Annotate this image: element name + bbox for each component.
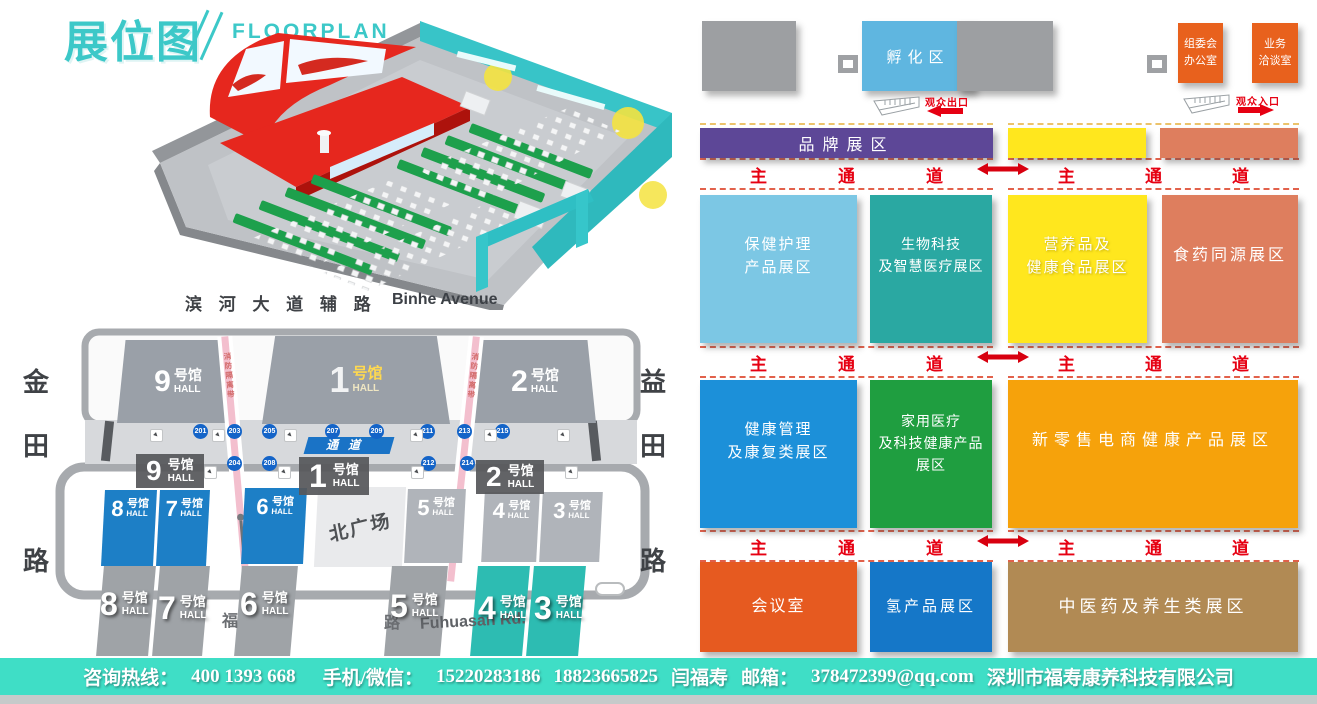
door-icon: ▸ <box>212 429 225 442</box>
divider <box>700 530 993 532</box>
north-plaza-label: 北广场 <box>314 503 406 550</box>
main-aisle-band: 主通道 <box>700 534 993 559</box>
company-name: 深圳市福寿康养科技有限公司 <box>987 663 1234 690</box>
hall-1-number: 1 <box>329 362 349 398</box>
zone-business-room: 业务洽谈室 <box>1252 23 1298 83</box>
divider <box>1008 123 1299 125</box>
overlay-label-2: 2 号馆HALL <box>476 460 544 494</box>
zone-home-medical-tech-health: 家用医疗及科技健康产品展区 <box>870 380 992 528</box>
zone-conference-room: 会议室 <box>700 562 857 652</box>
hall-7: 7 号馆HALL <box>156 490 210 566</box>
road-jintian: 金 田 路 <box>20 362 52 578</box>
hall-8: 8 号馆HALL <box>101 490 157 566</box>
divider <box>1008 530 1299 532</box>
divider <box>1008 188 1299 190</box>
zone-nutrition-health-food: 营养品及健康食品展区 <box>1008 195 1147 343</box>
hall-6: 6 号馆HALL <box>241 488 307 564</box>
zone-tcm-wellness: 中医药及养生类展区 <box>1008 562 1298 652</box>
email-address: 378472399@qq.com <box>811 666 974 688</box>
strip-label-6: 6 号馆HALL <box>240 588 288 620</box>
phone-number-1: 15220283186 <box>436 666 541 688</box>
door-icon: ▸ <box>484 429 497 442</box>
divider <box>700 123 993 125</box>
hall-1: 1 号馆 HALL <box>262 336 450 424</box>
zone-health-management-rehab: 健康管理及康复类展区 <box>700 380 857 528</box>
hall-9-number: 9 <box>154 367 171 397</box>
door-icon: ▸ <box>411 466 424 479</box>
booth-badge: 214 <box>460 456 475 471</box>
booth-badge: 209 <box>369 424 384 439</box>
road-fuhuasan-cn-a: 福 <box>222 607 238 631</box>
strip-label-4: 4 号馆HALL <box>478 592 526 624</box>
door-icon: ▸ <box>565 466 578 479</box>
door-icon: ▸ <box>204 466 217 479</box>
hall-2-number: 2 <box>511 367 528 397</box>
strip-label-8: 8 号馆HALL <box>100 588 148 620</box>
divider <box>700 346 993 348</box>
zone-committee-office: 组委会办公室 <box>1178 23 1223 83</box>
unlabeled-block-left <box>702 21 796 91</box>
divider <box>1008 158 1299 160</box>
main-aisle-band: 主通道 <box>1008 162 1299 187</box>
hotline-label: 咨询热线： <box>83 663 178 690</box>
main-aisle-band: 主通道 <box>1008 534 1299 559</box>
door-icon: ▸ <box>284 429 297 442</box>
hall-4: 4 号馆HALL <box>481 492 540 562</box>
door-icon: ▸ <box>278 466 291 479</box>
zone-food-medicine-homology: 食药同源展区 <box>1162 195 1298 343</box>
main-aisle-band: 主通道 <box>700 350 993 375</box>
door-icon: ▸ <box>150 429 163 442</box>
contact-name: 闫福寿 <box>671 663 728 690</box>
strip-label-5: 5 号馆HALL <box>390 590 438 622</box>
booth-badge: 208 <box>262 456 277 471</box>
zone-healthcare-products: 保健护理产品展区 <box>700 195 857 343</box>
email-label: 邮箱： <box>741 663 798 690</box>
zone-biotech-smart-medical: 生物科技及智慧医疗展区 <box>870 195 992 343</box>
escalator-icon <box>873 96 921 116</box>
zone-brand: 品牌展区 <box>700 128 993 158</box>
road-yitian: 益 田 路 <box>637 362 669 578</box>
hall-3: 3 号馆HALL <box>539 492 603 562</box>
divider <box>1008 376 1299 378</box>
zone-bar-salmon <box>1160 128 1298 158</box>
bottom-strip <box>0 695 1317 704</box>
road-binhe-cn: 滨 河 大 道 辅 路 <box>185 290 377 315</box>
booth-badge: 207 <box>325 424 340 439</box>
north-plaza: 北广场 <box>314 487 406 567</box>
road-binhe-en: Binhe Avenue <box>392 291 498 309</box>
exit-arrow-icon <box>927 105 963 117</box>
gate-icon <box>1147 52 1167 76</box>
main-aisle-band: 主通道 <box>1008 350 1299 375</box>
overlay-label-1: 1 号馆HALL <box>299 457 369 495</box>
hall-5: 5 号馆HALL <box>404 489 466 563</box>
strip-label-3: 3 号馆HALL <box>534 592 582 624</box>
unlabeled-block-right <box>957 21 1053 91</box>
main-aisle-band: 主通道 <box>700 162 993 187</box>
zone-hydrogen-products: 氢产品展区 <box>870 562 992 652</box>
booth-badge: 203 <box>227 424 242 439</box>
divider <box>700 158 993 160</box>
overlay-label-9: 9 号馆HALL <box>136 454 204 488</box>
zone-bar-yellow <box>1008 128 1146 158</box>
hall-2: 2 号馆 HALL <box>474 340 596 423</box>
corridor-passage-bar: 通道 <box>304 437 395 454</box>
strip-label-7: 7 号馆HALL <box>158 592 206 624</box>
hotline-number: 400 1393 668 <box>191 666 296 688</box>
divider <box>700 376 993 378</box>
wechat-label: 手机/微信： <box>323 663 423 690</box>
booth-badge: 205 <box>262 424 277 439</box>
phone-number-2: 18823665825 <box>553 666 658 688</box>
gate-icon <box>838 52 858 76</box>
contact-footer: 咨询热线：400 1393 668 手机/微信：15220283186 1882… <box>0 658 1317 695</box>
divider <box>1008 346 1299 348</box>
exhibition-hall-3d-render <box>68 5 678 310</box>
booth-badge: 213 <box>457 424 472 439</box>
booth-badge: 204 <box>227 456 242 471</box>
entrance-arrow-icon <box>1238 104 1274 116</box>
booth-badge: 215 <box>495 424 510 439</box>
booth-badge: 201 <box>193 424 208 439</box>
door-icon: ▸ <box>410 429 423 442</box>
divider <box>700 188 993 190</box>
floorplan-page: 展位图 FLOORPLAN <box>0 0 1317 704</box>
door-icon: ▸ <box>557 429 570 442</box>
escalator-icon <box>1183 94 1231 114</box>
zone-new-retail-ecommerce: 新零售电商健康产品展区 <box>1008 380 1298 528</box>
